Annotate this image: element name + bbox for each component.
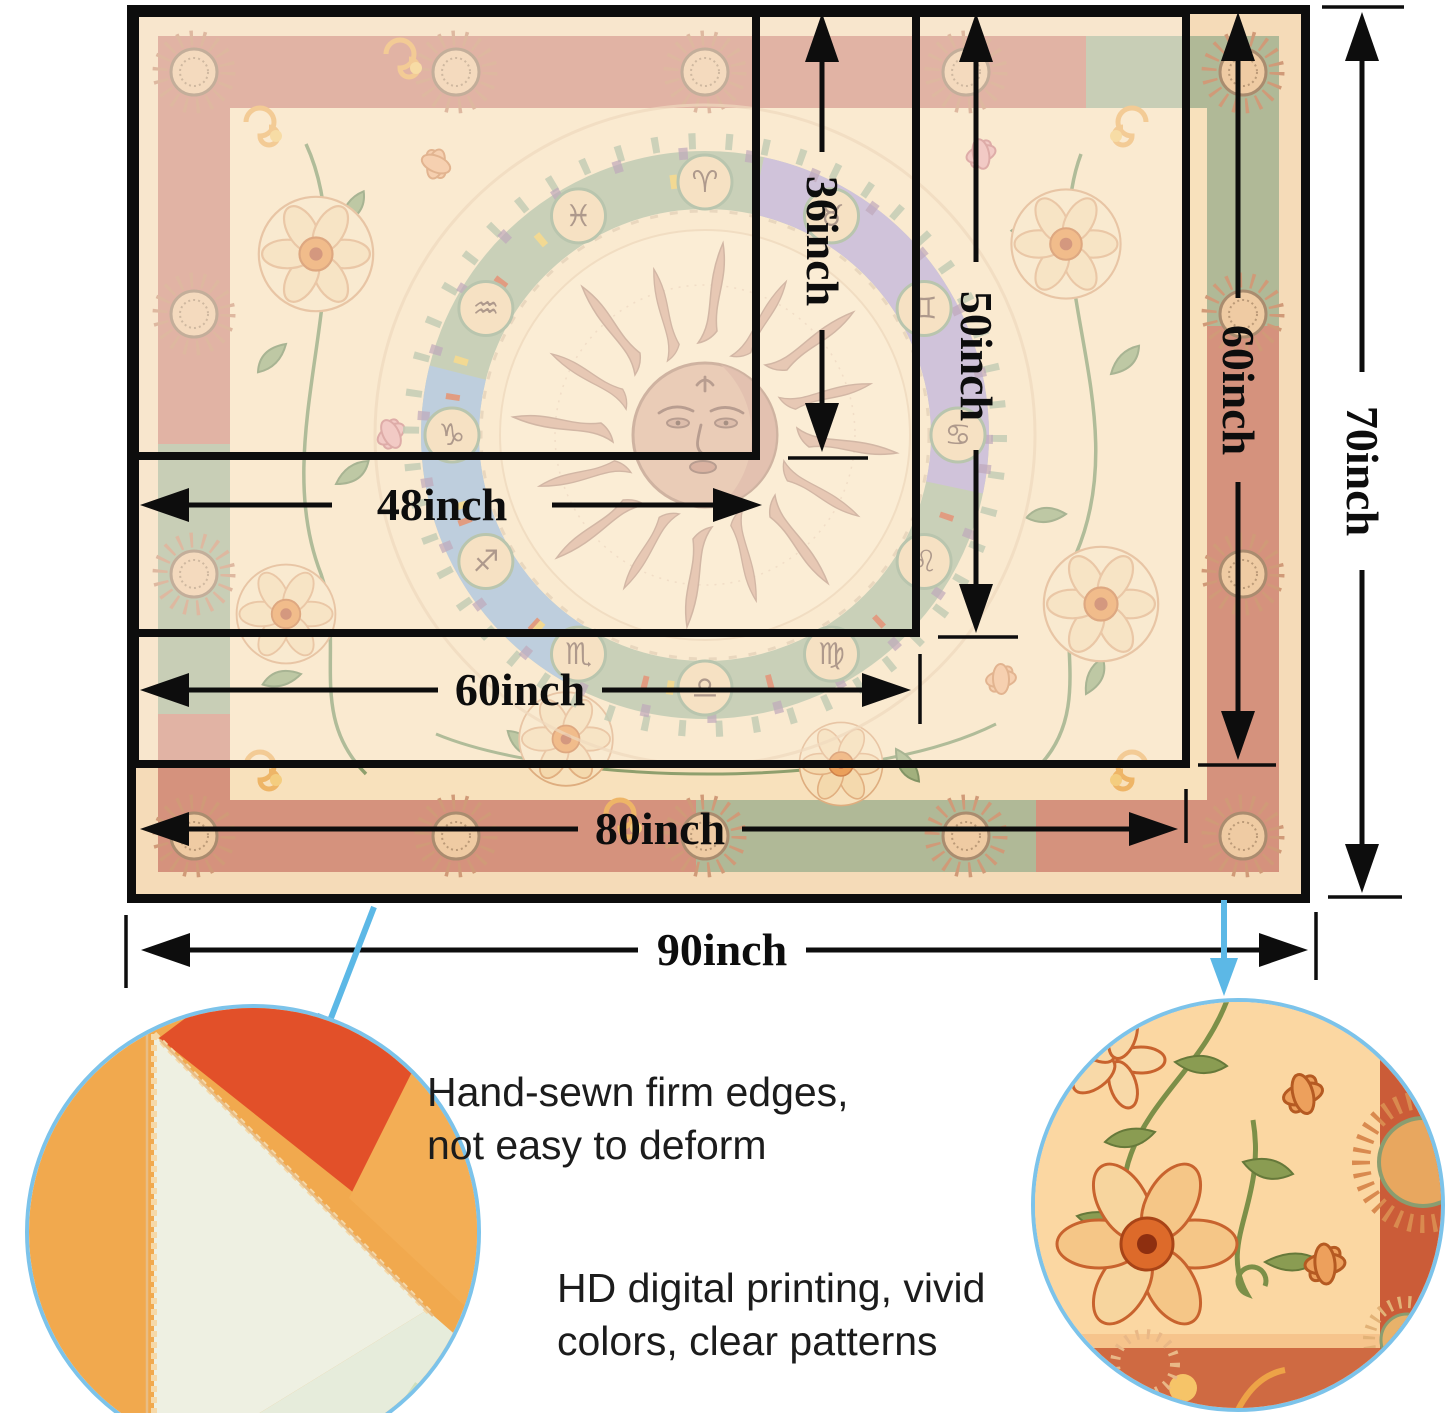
feature-text-sewn: Hand-sewn firm edges, not easy to deform xyxy=(427,1066,849,1172)
height-label-70inch: 70inch xyxy=(1339,406,1385,536)
width-label-90inch: 90inch xyxy=(657,927,787,973)
feature-print-line2: colors, clear patterns xyxy=(557,1315,985,1368)
feature-sewn-line1: Hand-sewn firm edges, xyxy=(427,1066,849,1119)
width-label-60inch: 60inch xyxy=(455,667,585,713)
feature-print-line1: HD digital printing, vivid xyxy=(557,1262,985,1315)
tapestry-size-infographic: ♈ ♉ ♊ ♋ ♌ ♍ ♎ ♏ ♐ ♑ ♒ ♓ xyxy=(0,0,1445,1413)
width-label-48inch: 48inch xyxy=(377,482,507,528)
feature-sewn-line2: not easy to deform xyxy=(427,1119,849,1172)
width-label-80inch: 80inch xyxy=(595,806,725,852)
feature-text-print: HD digital printing, vivid colors, clear… xyxy=(557,1262,985,1368)
height-label-50inch: 50inch xyxy=(953,291,999,421)
height-label-36inch: 36inch xyxy=(799,176,845,306)
pattern-detail-photo xyxy=(1031,998,1445,1412)
height-label-60inch: 60inch xyxy=(1215,325,1261,455)
